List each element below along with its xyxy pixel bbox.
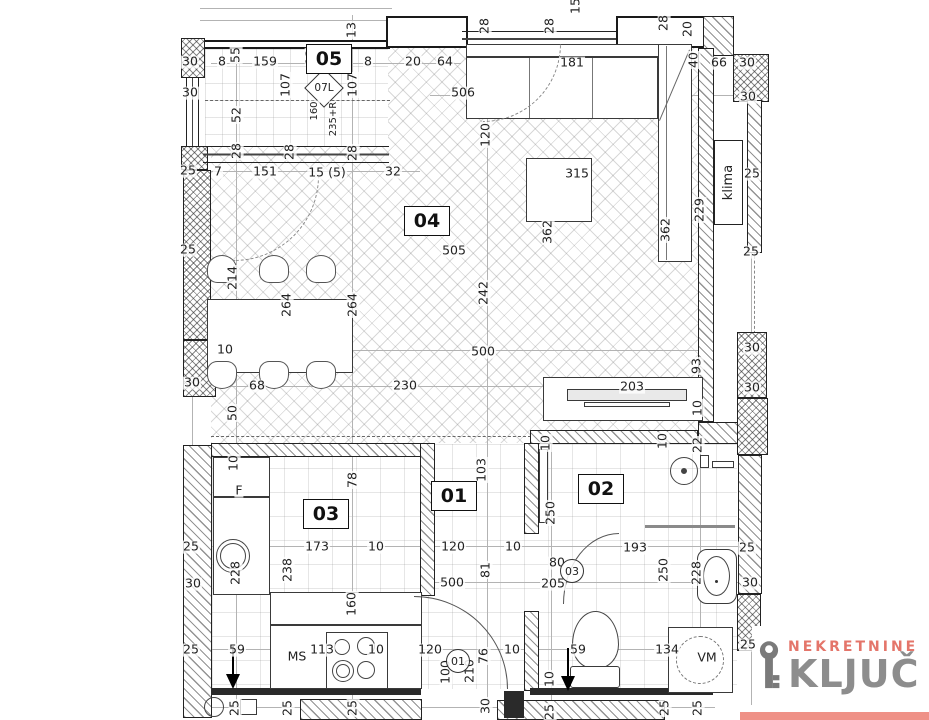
brand-underline — [740, 712, 929, 720]
dim-label: 242 — [478, 280, 491, 306]
dim-label: 40 — [688, 51, 701, 69]
dim-label: 250 — [658, 557, 671, 583]
dim-label: 30 — [480, 697, 493, 715]
dim-label: 30 — [181, 56, 199, 69]
wall-segment — [524, 443, 539, 534]
room-label-03: 03 — [303, 499, 349, 529]
wall-segment — [420, 443, 435, 596]
dim-label: 25 — [229, 699, 242, 717]
dim-label: 28 — [544, 17, 557, 35]
dim-label: 10 — [544, 670, 557, 688]
wall-segment — [300, 699, 422, 720]
dim-label: 25 — [182, 541, 200, 554]
dim-label: 20 — [404, 56, 422, 69]
dim-label: 25 — [282, 699, 295, 717]
dim-label: 229 — [694, 197, 707, 223]
dim-label: 10 — [692, 399, 705, 417]
sofa-cushion-line — [592, 58, 593, 118]
logo: NEKRETNINE KLJUČ — [752, 626, 929, 706]
dim-label: 203 — [619, 381, 645, 394]
dim-label: F — [234, 485, 243, 498]
dim-label: 193 — [622, 542, 648, 555]
dim-label: 30 — [743, 382, 761, 395]
burner — [334, 639, 350, 655]
dim-label: 50 — [227, 404, 240, 422]
dim-label: 113 — [309, 644, 335, 657]
wall-segment — [530, 430, 698, 444]
key-icon — [756, 639, 782, 693]
dim-label: 25 — [179, 244, 197, 257]
dim-label: 205 — [540, 578, 566, 591]
dim-label: 28 — [479, 17, 492, 35]
dim-label: 10 — [503, 644, 521, 657]
dim-label: 500 — [439, 577, 465, 590]
dim-label: 10 — [504, 541, 522, 554]
dim-label: 228 — [691, 560, 704, 586]
circled-label-03: 03 — [560, 559, 584, 583]
chair — [207, 361, 237, 389]
dim-line — [200, 8, 392, 9]
dim-label: 25 — [544, 703, 557, 720]
dim-label: 173 — [304, 541, 330, 554]
dim-label: 30 — [183, 377, 201, 390]
burner-inner — [336, 664, 350, 678]
dim-label: 250 — [545, 500, 558, 526]
dim-label: 181 — [559, 57, 585, 70]
washbasin-drain — [715, 580, 718, 583]
dim-label: 20 — [682, 20, 695, 38]
dim-label: 15 (5) — [307, 167, 347, 180]
dim-label: 151 — [252, 166, 278, 179]
dim-line — [200, 20, 392, 21]
dim-label: 25 — [659, 699, 672, 717]
klima-label: klima — [721, 165, 736, 200]
dim-label: 160 — [346, 591, 359, 617]
dim-label: 52 — [231, 106, 244, 124]
dim-label: 78 — [347, 471, 360, 489]
room-label-02: 02 — [578, 474, 624, 504]
dim-label: 10 — [228, 454, 241, 472]
room-label-05: 05 — [306, 44, 352, 74]
dim-label: 8 — [363, 56, 373, 69]
dim-label: MS — [287, 651, 308, 664]
dim-label: 506 — [450, 87, 476, 100]
wall-segment — [504, 691, 524, 718]
dim-label: 28 — [284, 143, 297, 161]
brand-name-main: KLJUČ — [788, 655, 920, 693]
dim-label: 10 — [540, 434, 553, 452]
wall-segment — [737, 398, 768, 455]
dim-label: 120 — [480, 122, 493, 148]
dim-label: 30 — [739, 91, 757, 104]
unit-diamond-label: 07L — [314, 82, 333, 94]
dim-label: 228 — [230, 560, 243, 586]
toilet-cistern — [570, 666, 620, 688]
dim-label: VM — [696, 652, 717, 665]
lower-fixture — [240, 699, 257, 715]
dim-label: 7 — [213, 166, 223, 179]
dim-label: 64 — [436, 56, 454, 69]
dim-label: 315 — [564, 168, 590, 181]
dim-label: 264 — [281, 292, 294, 318]
dim-label: 160 — [310, 100, 320, 121]
dim-label: 362 — [660, 217, 673, 243]
dim-label: 25 — [743, 168, 761, 181]
dim-label: 8 — [217, 56, 227, 69]
dim-label: 25 — [182, 644, 200, 657]
wall-segment — [386, 16, 468, 48]
tv-base — [584, 402, 670, 407]
dim-label: 505 — [441, 245, 467, 258]
chair — [306, 361, 336, 389]
brand-text: NEKRETNINE KLJUČ — [788, 640, 920, 693]
dim-label: 134 — [654, 644, 680, 657]
dim-label: 59 — [228, 644, 246, 657]
chair — [306, 255, 336, 283]
wall-segment — [738, 455, 762, 594]
dim-line — [487, 90, 488, 707]
dim-label: 159 — [252, 56, 278, 69]
dim-label: 59 — [569, 644, 587, 657]
dim-label: 362 — [542, 219, 555, 245]
dim-label: 230 — [392, 380, 418, 393]
dim-label: 28 — [347, 144, 360, 162]
dim-label: 264 — [347, 292, 360, 318]
lower-sink — [204, 697, 224, 717]
shower-fixture — [712, 461, 734, 468]
burner — [357, 661, 375, 679]
dim-label: 103 — [476, 457, 489, 483]
room-label-04: 04 — [404, 206, 450, 236]
dim-label: 55 — [230, 46, 243, 64]
dim-label: 238 — [282, 557, 295, 583]
dim-label: 25 — [742, 246, 760, 259]
section-arrow — [561, 676, 575, 691]
entry-arrow — [226, 674, 240, 689]
wall-segment — [211, 443, 421, 457]
dim-label: 25 — [692, 699, 705, 717]
toilet-bowl — [572, 611, 619, 669]
dim-label: 25 — [739, 639, 757, 652]
dim-label: 15 — [570, 0, 583, 15]
floor-plan: klima — [0, 0, 929, 720]
wall-segment — [211, 688, 421, 695]
dim-label: 235+R — [329, 101, 339, 137]
dim-label: 10 — [367, 644, 385, 657]
dim-label: 25 — [738, 542, 756, 555]
open-boundary-dashline — [211, 436, 531, 437]
dim-label: 32 — [384, 166, 402, 179]
dim-label: 30 — [741, 577, 759, 590]
washbasin-bowl — [703, 556, 730, 596]
dim-label: 30 — [743, 342, 761, 355]
dim-label: 30 — [738, 57, 756, 70]
dim-label: 120 — [440, 541, 466, 554]
dim-label: 10 — [367, 541, 385, 554]
dim-label: 30 — [181, 87, 199, 100]
dim-label: 28 — [231, 142, 244, 160]
circled-label-01: 01 — [446, 649, 470, 673]
dim-label: 68 — [248, 380, 266, 393]
dim-label: 81 — [480, 561, 493, 579]
dim-line — [188, 546, 762, 547]
room-label-01: 01 — [431, 481, 477, 511]
dim-label: 25 — [347, 699, 360, 717]
dim-label: 93 — [691, 357, 704, 375]
dim-label: 22 — [692, 436, 705, 454]
dim-label: 28 — [658, 14, 671, 32]
dim-label: 66 — [710, 57, 728, 70]
shower-glass — [645, 525, 735, 528]
axis-dashline — [205, 100, 390, 101]
dim-label: 120 — [417, 644, 443, 657]
wall-segment — [524, 611, 539, 691]
chair — [259, 255, 289, 283]
dim-label: 10 — [657, 432, 670, 450]
shower-fixture — [700, 455, 709, 468]
dim-label: 30 — [184, 578, 202, 591]
shower-head-dot — [681, 468, 687, 474]
dim-label: 214 — [227, 265, 240, 291]
klima-unit: klima — [714, 140, 743, 225]
dim-label: 500 — [470, 346, 496, 359]
dim-label: 13 — [346, 21, 359, 39]
dim-label: 107 — [280, 72, 293, 98]
dim-label: 10 — [216, 344, 234, 357]
dim-label: 25 — [179, 165, 197, 178]
dim-label: 76 — [478, 647, 491, 665]
dim-label: 107 — [347, 72, 360, 98]
